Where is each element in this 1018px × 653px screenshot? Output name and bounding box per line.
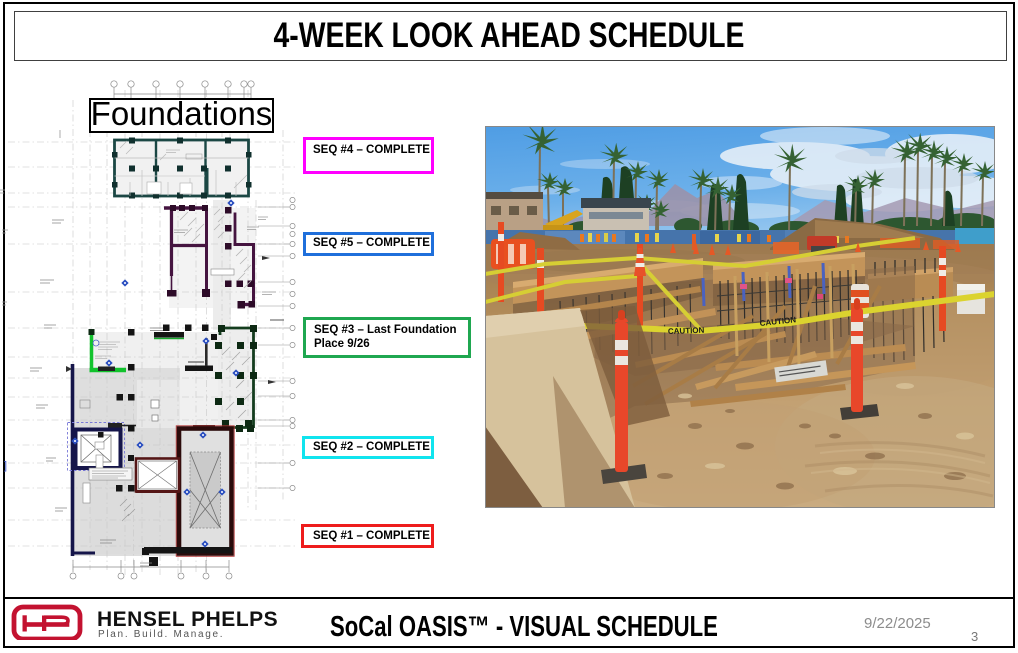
- svg-text:CAUTION: CAUTION: [668, 326, 705, 336]
- svg-text:]: ]: [4, 460, 7, 472]
